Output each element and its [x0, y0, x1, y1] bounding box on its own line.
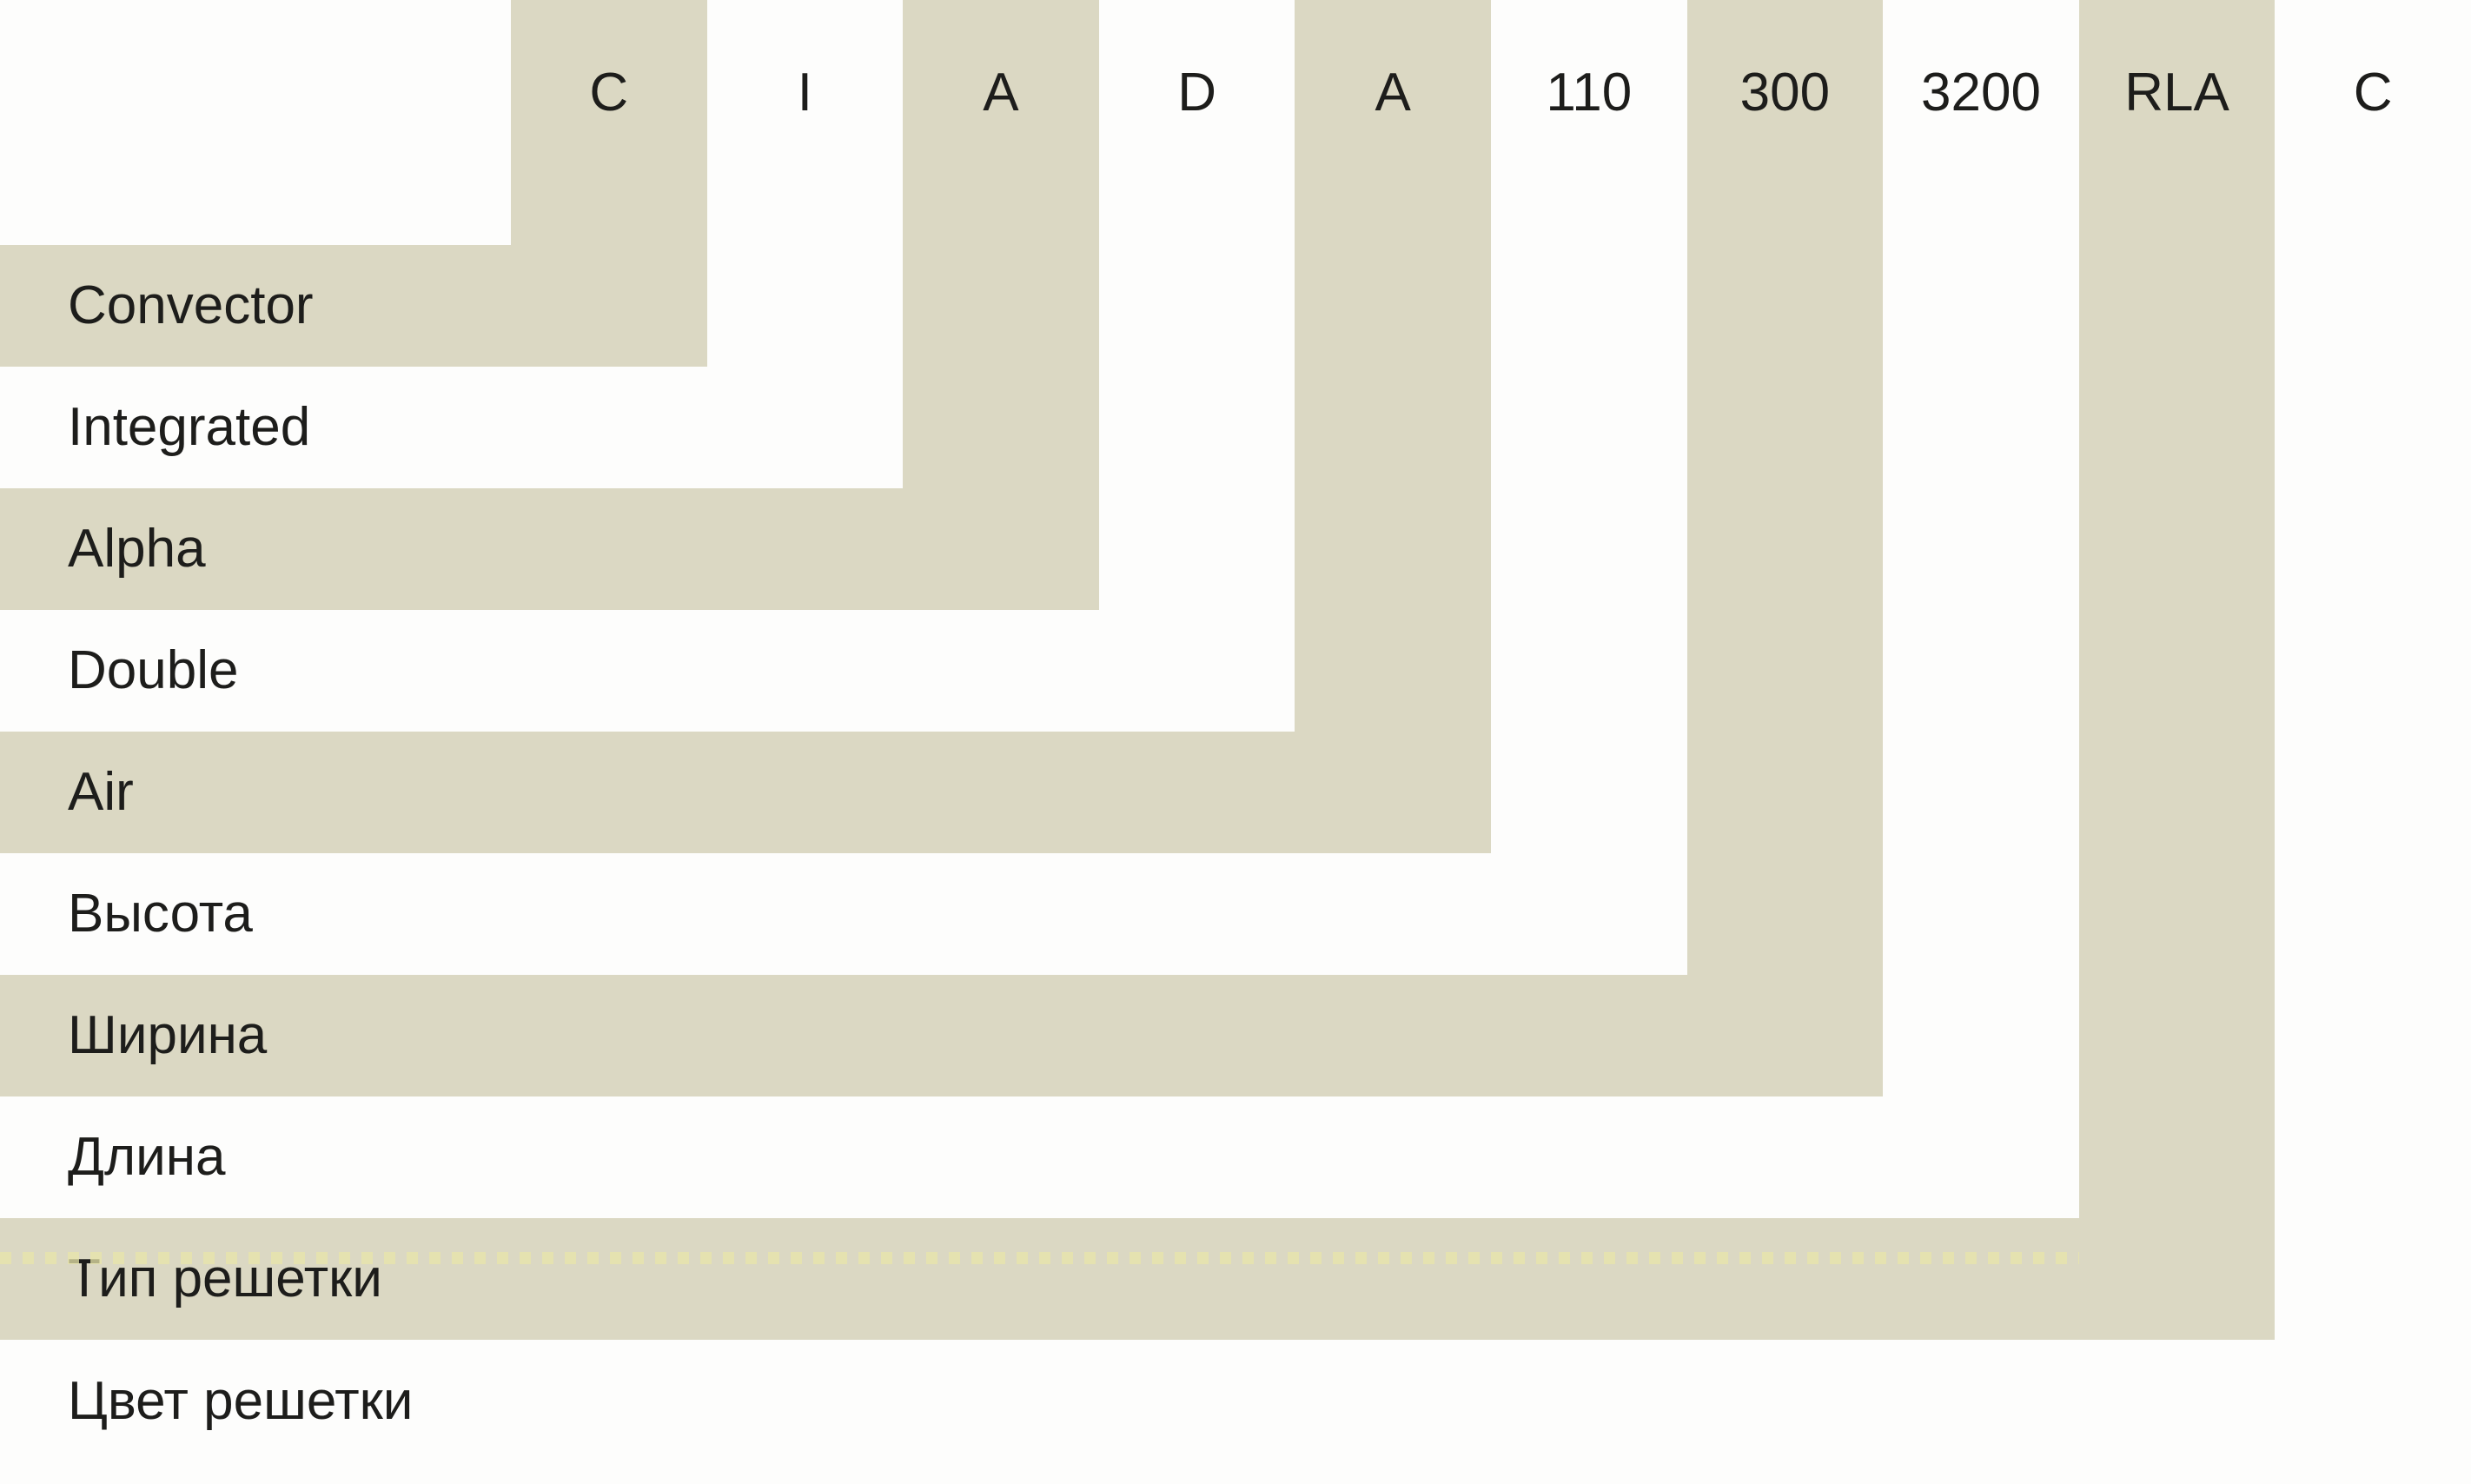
- code-column-300: 300: [1687, 0, 1884, 1096]
- code-label-3200: 3200: [1883, 0, 2079, 186]
- code-label-c2: C: [2275, 0, 2471, 186]
- code-label-a2: A: [1295, 0, 1491, 186]
- row-band-width: Ширина: [0, 975, 1883, 1096]
- row-label-grille-color: Цвет решетки: [0, 1375, 413, 1428]
- row-band-length: Длина: [0, 1096, 2079, 1218]
- row-band-height: Высота: [0, 853, 1687, 975]
- nomenclature-diagram: Convector Integrated Alpha Double Air Вы…: [0, 0, 2471, 1484]
- code-column-rla: RLA: [2079, 0, 2276, 1340]
- code-label-300: 300: [1687, 0, 1884, 186]
- row-label-double: Double: [0, 644, 238, 698]
- code-column-3200: 3200: [1883, 0, 2079, 1218]
- dashed-separator-line: [0, 1252, 2079, 1264]
- row-label-alpha: Alpha: [0, 522, 206, 576]
- row-label-length: Длина: [0, 1130, 226, 1184]
- row-label-width: Ширина: [0, 1009, 267, 1063]
- row-label-integrated: Integrated: [0, 401, 310, 454]
- code-label-d: D: [1099, 0, 1295, 186]
- code-column-c1: C: [511, 0, 707, 367]
- row-label-height: Высота: [0, 887, 253, 941]
- row-band-grille-type: Тип решетки: [0, 1218, 2275, 1340]
- code-column-i: I: [707, 0, 904, 488]
- code-column-c2: C: [2275, 0, 2471, 1461]
- code-label-a1: A: [903, 0, 1099, 186]
- row-label-air: Air: [0, 765, 134, 819]
- row-band-air: Air: [0, 732, 1491, 853]
- code-label-110: 110: [1491, 0, 1687, 186]
- code-label-rla: RLA: [2079, 0, 2276, 186]
- code-column-d: D: [1099, 0, 1295, 732]
- code-label-i: I: [707, 0, 904, 186]
- code-label-c1: C: [511, 0, 707, 186]
- code-column-110: 110: [1491, 0, 1687, 975]
- code-column-a2: A: [1295, 0, 1491, 853]
- code-column-a1: A: [903, 0, 1099, 610]
- row-label-convector: Convector: [0, 279, 314, 333]
- row-band-grille-color: Цвет решетки: [0, 1340, 2471, 1484]
